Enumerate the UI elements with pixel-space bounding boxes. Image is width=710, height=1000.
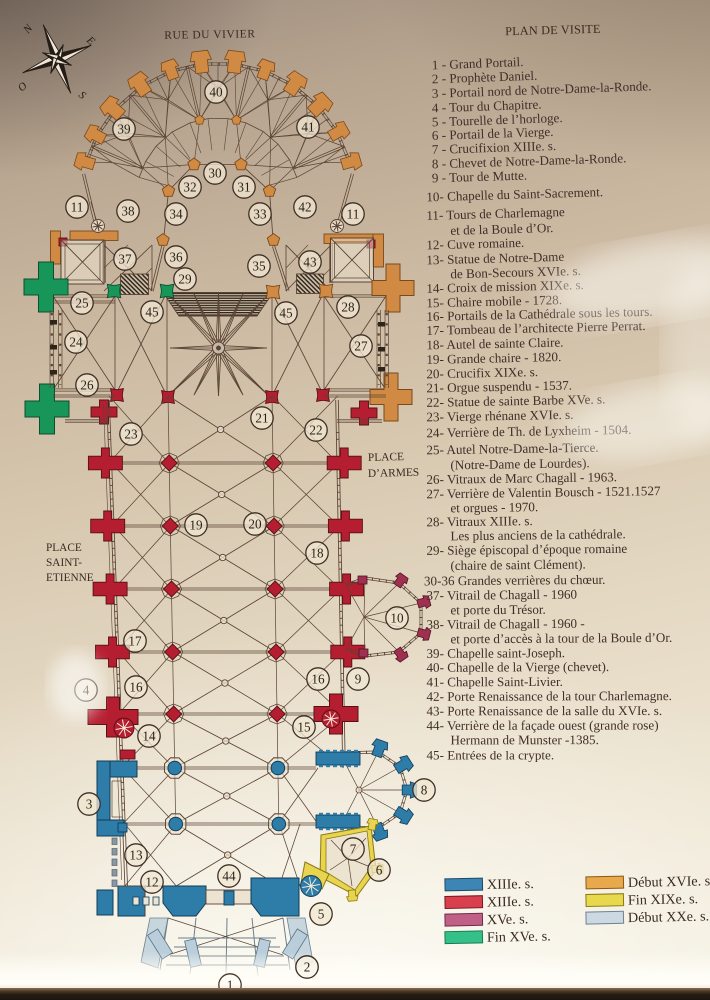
svg-text:2: 2 <box>304 959 311 974</box>
